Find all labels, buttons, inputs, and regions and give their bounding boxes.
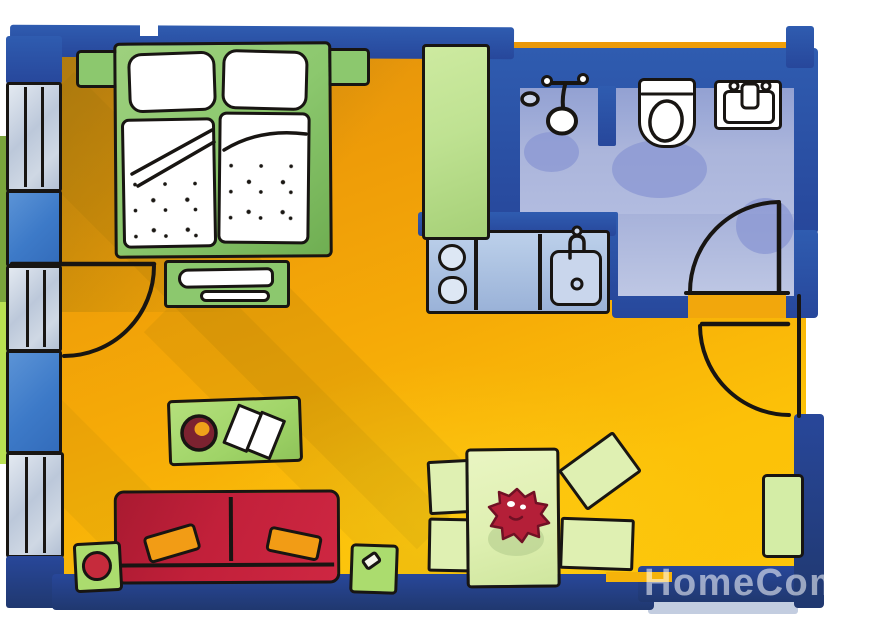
nightstand-right bbox=[326, 48, 370, 86]
entry-door-edge-line bbox=[797, 294, 801, 418]
floorplan-canvas: HomeCompany bbox=[0, 0, 869, 620]
side-table-right bbox=[349, 543, 399, 595]
left-wall-corner-top bbox=[6, 36, 62, 84]
bench-towel bbox=[178, 267, 274, 289]
bathroom-floor-patch-3 bbox=[524, 132, 579, 172]
window-mullion bbox=[41, 87, 44, 187]
pillow-left bbox=[127, 50, 217, 113]
window-mullion bbox=[43, 270, 46, 347]
window-mullion bbox=[24, 87, 27, 187]
washbasin-inner bbox=[723, 90, 775, 124]
red-bowl-on-side-table bbox=[81, 550, 113, 582]
counter-divider-2 bbox=[538, 234, 542, 310]
toilet bbox=[638, 78, 696, 148]
window-pillar-1 bbox=[6, 190, 62, 267]
wall-shelf bbox=[762, 474, 804, 558]
stove-burner-1 bbox=[438, 244, 466, 271]
duvet-dots bbox=[225, 161, 302, 237]
dining-chair-right-2 bbox=[559, 517, 635, 572]
dining-table bbox=[465, 448, 560, 589]
bathroom-floor-patch-1 bbox=[612, 140, 707, 198]
centerpiece-shadow bbox=[488, 522, 544, 556]
coffee-table bbox=[167, 396, 303, 467]
bathroom-door-gap bbox=[688, 294, 786, 318]
side-table-left bbox=[73, 541, 124, 593]
bench-towel-small bbox=[200, 290, 270, 302]
bathroom-threshold-line bbox=[684, 291, 790, 295]
window-glass-balcony-door bbox=[6, 265, 62, 352]
bathroom-floor-patch-2 bbox=[736, 198, 794, 254]
bathroom-wall-tab bbox=[786, 26, 814, 68]
sofa bbox=[114, 489, 340, 584]
window-mullion bbox=[25, 457, 28, 553]
sofa-cushion-right bbox=[265, 525, 323, 561]
shower-partition-wall bbox=[598, 86, 616, 146]
pillow-right bbox=[221, 49, 309, 111]
window-mullion bbox=[26, 270, 29, 347]
counter-divider-1 bbox=[474, 234, 478, 310]
duvet-dots bbox=[130, 178, 209, 240]
sofa-cushion-left bbox=[142, 522, 202, 564]
duvet-right bbox=[217, 112, 310, 245]
duvet-left bbox=[121, 117, 217, 249]
wardrobe bbox=[422, 44, 490, 240]
window-pillar-2 bbox=[6, 350, 62, 454]
wall-top-notch bbox=[140, 22, 158, 36]
stove-burner-2 bbox=[438, 276, 467, 304]
window-mullion bbox=[43, 457, 46, 553]
watermark: HomeCompany bbox=[644, 562, 869, 605]
sofa-seam bbox=[229, 497, 233, 561]
kitchen-sink-basin bbox=[550, 250, 602, 306]
window-glass-3 bbox=[6, 452, 64, 558]
window-glass-1 bbox=[6, 82, 62, 192]
